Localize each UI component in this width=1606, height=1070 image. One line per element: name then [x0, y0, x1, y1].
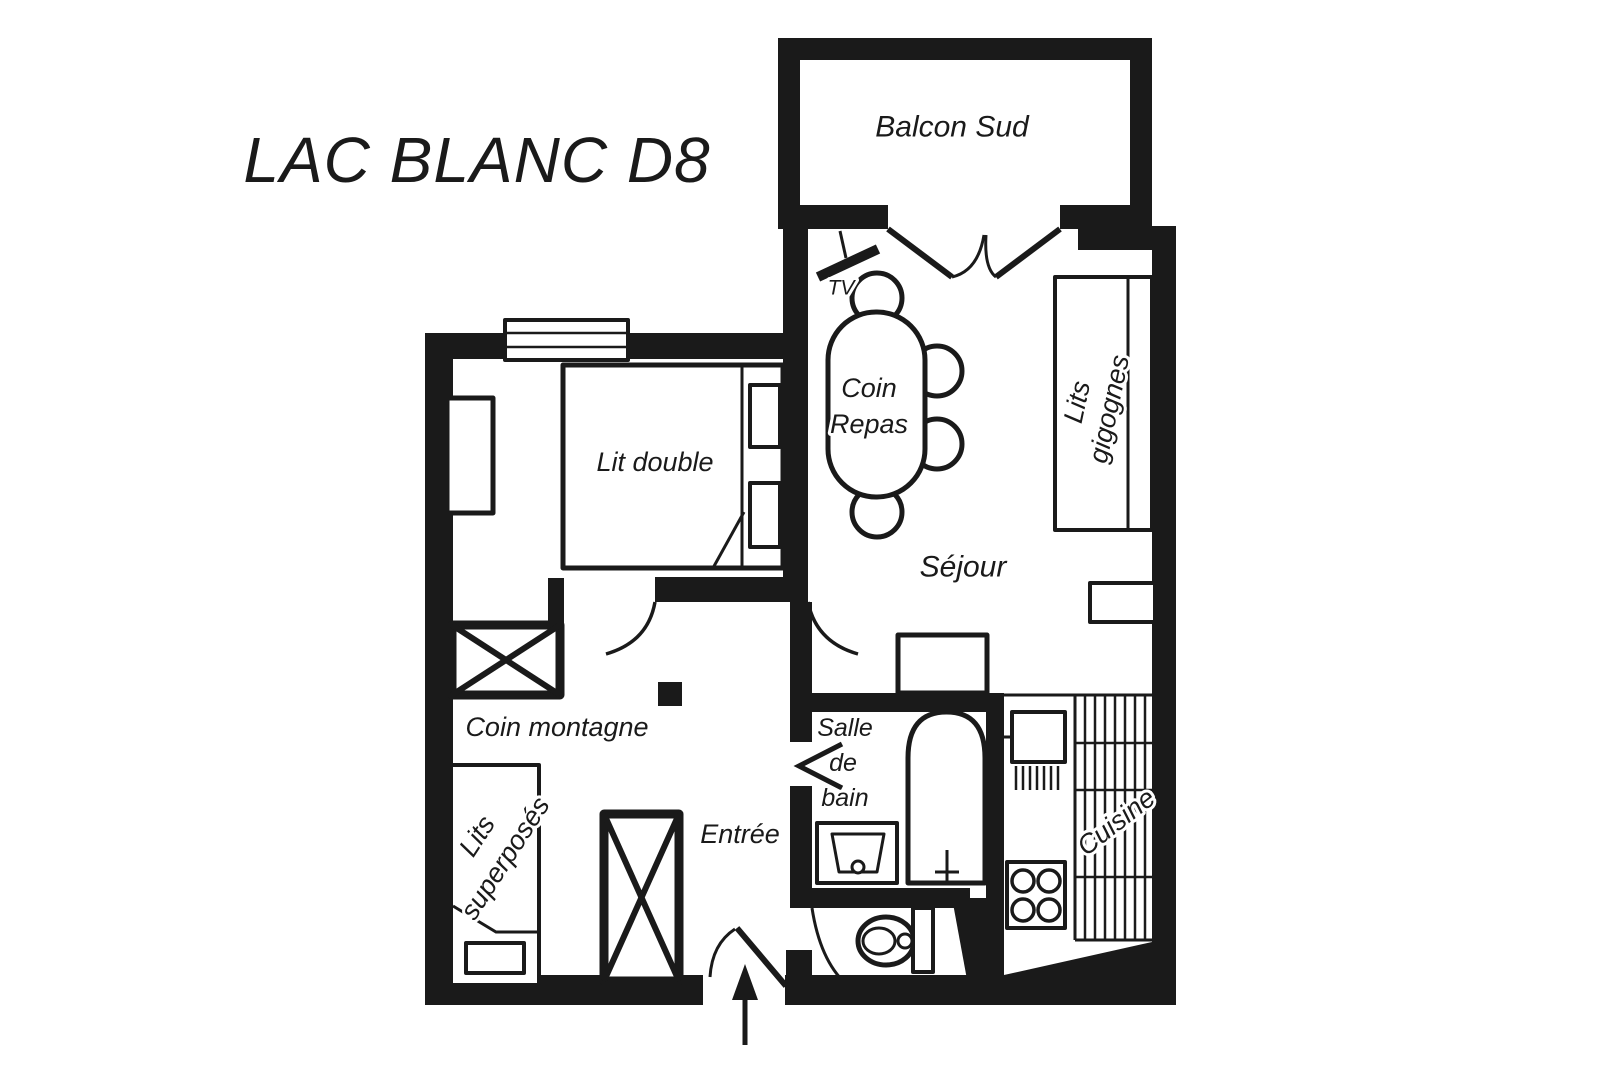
bedroom-door-arc	[606, 602, 655, 654]
label-coin-repas-line2: Repas	[830, 409, 908, 439]
room-label-salle-de-bain-line2: de	[829, 749, 857, 777]
balcony-wall-top	[778, 38, 1152, 60]
pillow	[466, 943, 524, 973]
kitchen-west-wall	[986, 693, 1004, 905]
room-label-coin-montagne: Coin montagne	[465, 712, 648, 742]
bathroom-wall-top	[812, 693, 1004, 712]
balcony-wall-left	[778, 38, 800, 229]
burner	[1012, 899, 1034, 921]
balcony-door-leaf-left	[888, 229, 952, 277]
bottom-right-wedge	[1004, 942, 1152, 975]
room-label-sejour: Séjour	[920, 551, 1008, 584]
entrance-door-arc	[710, 929, 735, 977]
closet-coin-montagne	[452, 625, 560, 695]
bedroom-wardrobe	[447, 398, 493, 513]
burner	[1038, 899, 1060, 921]
room-label-entree: Entrée	[700, 819, 780, 849]
balcony-stub-right	[1060, 205, 1152, 229]
bedroom-door-jamb	[548, 578, 564, 626]
balcony-door-leaf-right	[996, 229, 1060, 277]
wc-kitchen-diagonal-wall	[952, 898, 1004, 985]
floor-plan-page: LAC BLANC D8 Balcon Sud Séjour Coin Repa…	[0, 0, 1606, 1070]
washbasin	[817, 823, 897, 883]
dining-set	[828, 273, 962, 537]
burner	[1012, 870, 1034, 892]
sejour-door-arc	[808, 602, 858, 654]
top-right-stub	[1078, 226, 1154, 250]
balcony-door-arc-right	[986, 235, 996, 277]
tv-mount	[840, 231, 846, 258]
tv-unit	[818, 231, 878, 277]
pillow	[750, 483, 780, 547]
closet-entree	[604, 814, 679, 981]
entrance-arrow	[732, 964, 758, 1045]
wc-door-arc	[812, 908, 846, 984]
room-label-salle-de-bain-line1: Salle	[817, 714, 873, 742]
burner	[1038, 870, 1060, 892]
room-label-balcony: Balcon Sud	[875, 111, 1030, 144]
pillow	[750, 385, 780, 447]
dining-table	[828, 312, 925, 497]
stove	[1007, 862, 1065, 928]
sejour-west-wall	[783, 229, 808, 602]
bathroom-wall-bottom	[790, 888, 970, 908]
bedroom-window	[505, 320, 628, 360]
bottom-wall-right	[785, 975, 1176, 1005]
toilet-tank	[913, 908, 933, 972]
sideboard	[898, 635, 987, 693]
balcony-wall-right	[1130, 38, 1152, 229]
radiator	[1090, 583, 1155, 622]
plan-title: LAC BLANC D8	[243, 124, 710, 196]
label-tv: TV	[828, 277, 857, 300]
balcony-door-arc-left	[952, 235, 984, 277]
hall-wall	[655, 577, 808, 602]
label-lit-double: Lit double	[596, 447, 713, 477]
toilet	[858, 908, 933, 972]
balcony-stub-left	[800, 205, 888, 229]
floor-plan-svg: LAC BLANC D8 Balcon Sud Séjour Coin Repa…	[0, 0, 1606, 1070]
bathtub	[908, 712, 985, 884]
room-label-salle-de-bain-line3: bain	[821, 784, 868, 812]
entrance-arrow-head	[732, 964, 758, 1000]
hall-jamb-stub	[658, 682, 682, 706]
label-coin-repas-line1: Coin	[841, 373, 897, 403]
bathroom-wall-left-upper	[790, 602, 812, 742]
